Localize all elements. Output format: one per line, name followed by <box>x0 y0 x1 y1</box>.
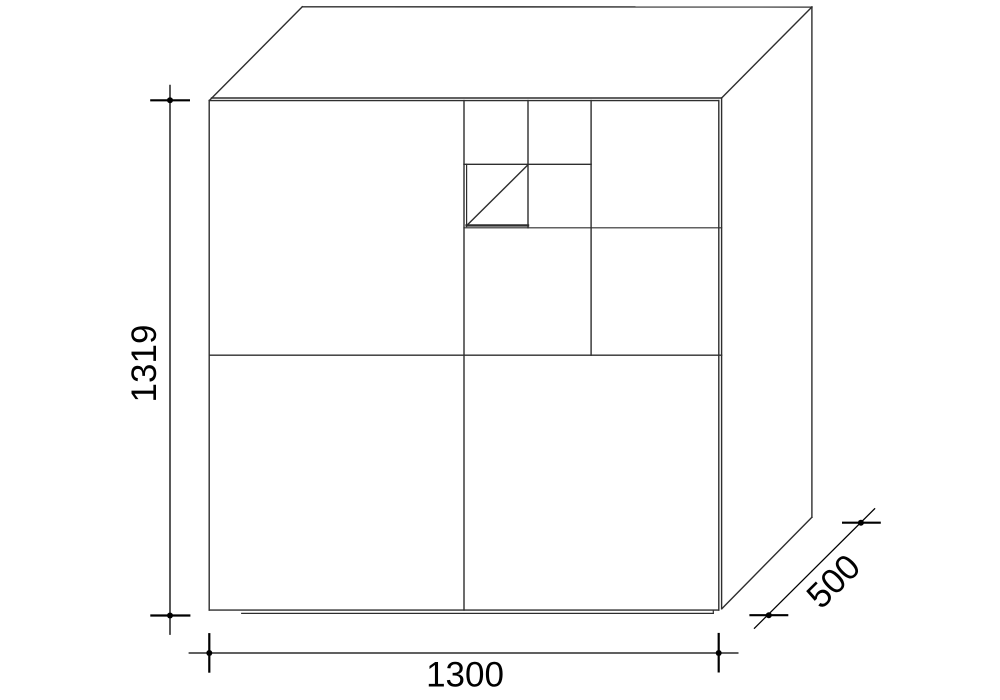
svg-text:1319: 1319 <box>125 325 164 403</box>
svg-text:1300: 1300 <box>426 656 504 695</box>
svg-text:500: 500 <box>799 547 868 616</box>
